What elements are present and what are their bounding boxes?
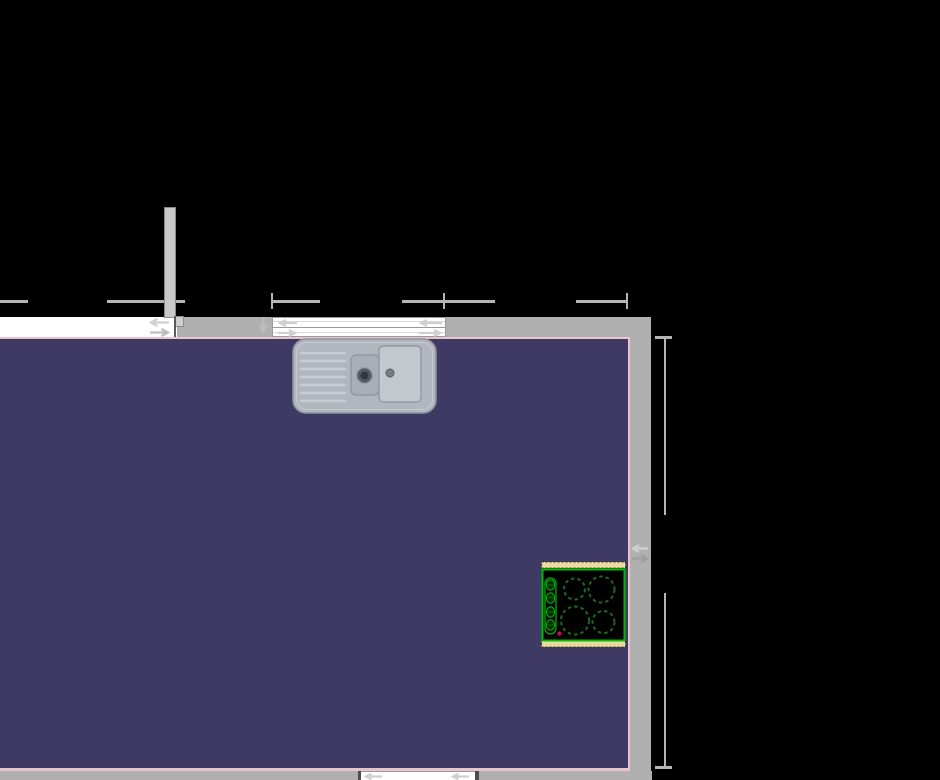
hob-trim-bottom (542, 641, 626, 647)
wall-join-line (174, 316, 176, 337)
move-right-arrow-icon[interactable] (150, 328, 171, 337)
sink-large-bowl (379, 346, 421, 402)
hob-indicator-light (558, 632, 562, 636)
move-right-arrow-icon[interactable] (632, 554, 650, 563)
window-handle-left-arrow-icon[interactable] (363, 773, 382, 780)
dimension-line-segment (576, 300, 628, 303)
floorplan-canvas[interactable] (0, 0, 940, 780)
sink-fixture[interactable] (292, 338, 438, 414)
hob-fixture[interactable] (541, 561, 627, 648)
dimension-terminal (626, 293, 629, 309)
sink-drain-small (386, 369, 394, 377)
window-handle-right-arrow-icon[interactable] (278, 329, 298, 337)
dimension-terminal (655, 766, 672, 769)
sink-drainer-ridges (301, 353, 345, 401)
window-handle-left-arrow-icon[interactable] (277, 319, 297, 327)
window-end-post (358, 771, 362, 780)
window-end-post (475, 771, 479, 780)
dimension-line-segment (402, 300, 495, 303)
wall-partition-stub[interactable] (164, 207, 176, 318)
sink-drain-center (361, 372, 369, 380)
dimension-terminal (655, 336, 672, 339)
dimension-line-segment (664, 337, 667, 515)
wall-bottom[interactable] (0, 771, 652, 780)
window-handle-left-arrow-icon[interactable] (450, 773, 469, 780)
move-down-arrow-icon[interactable] (259, 317, 268, 334)
window-handle-left-arrow-icon[interactable] (418, 319, 442, 327)
dimension-line-segment (0, 300, 28, 303)
dimension-line-segment (664, 593, 667, 767)
wall-join-node[interactable] (174, 316, 184, 327)
dimension-tick (443, 293, 446, 309)
dimension-tick (271, 293, 274, 309)
move-left-arrow-icon[interactable] (148, 318, 169, 327)
window-handle-right-arrow-icon[interactable] (419, 329, 443, 337)
dimension-line-segment (271, 300, 320, 303)
hob-trim-top (542, 562, 626, 568)
move-left-arrow-icon[interactable] (630, 544, 648, 553)
